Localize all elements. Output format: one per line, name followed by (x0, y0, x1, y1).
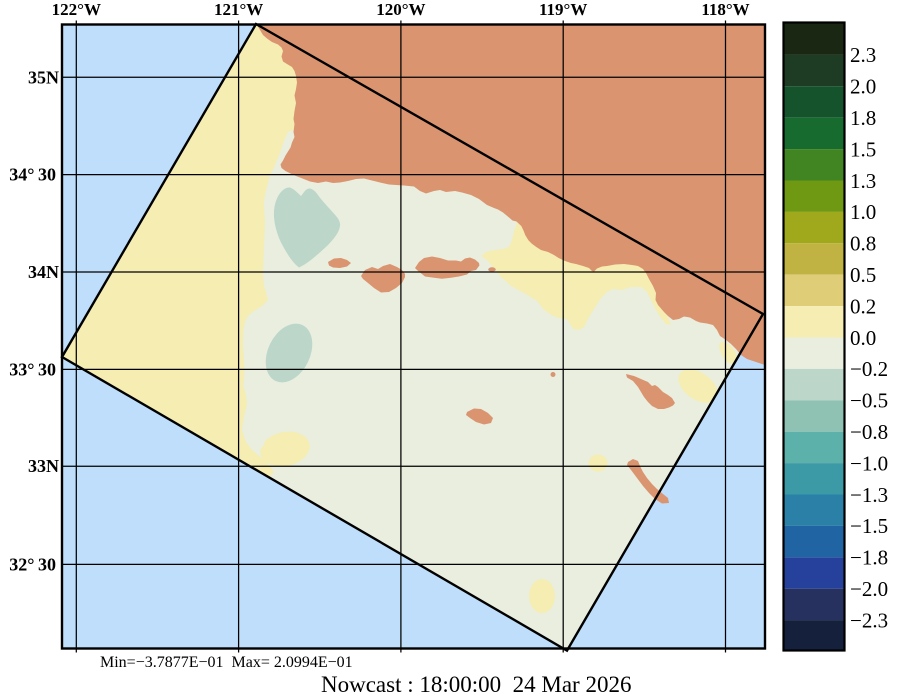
svg-text:−0.5: −0.5 (850, 389, 888, 413)
svg-text:122°W: 122°W (52, 0, 101, 19)
svg-text:120°W: 120°W (376, 0, 425, 19)
svg-text:−1.5: −1.5 (850, 514, 888, 538)
svg-text:0.5: 0.5 (850, 263, 876, 287)
svg-text:−0.8: −0.8 (850, 420, 888, 444)
svg-text:−1.3: −1.3 (850, 483, 888, 507)
svg-text:0.0: 0.0 (850, 326, 876, 350)
svg-text:1.0: 1.0 (850, 200, 876, 224)
svg-text:−2.0: −2.0 (850, 577, 888, 601)
svg-text:0.8: 0.8 (850, 232, 876, 256)
svg-text:118°W: 118°W (701, 0, 749, 19)
svg-text:−0.2: −0.2 (850, 357, 888, 381)
svg-text:−1.8: −1.8 (850, 546, 888, 570)
svg-text:35N: 35N (28, 67, 59, 87)
svg-text:1.8: 1.8 (850, 106, 876, 130)
svg-text:2.3: 2.3 (850, 43, 876, 67)
svg-text:1.5: 1.5 (850, 137, 876, 161)
svg-text:0.2: 0.2 (850, 294, 876, 318)
svg-text:Min=−3.7877E−01 Max= 2.0994E−: Min=−3.7877E−01 Max= 2.0994E−01 (100, 654, 353, 671)
svg-text:121°W: 121°W (214, 0, 263, 19)
svg-text:33° 30: 33° 30 (9, 359, 56, 379)
svg-text:119°W: 119°W (539, 0, 587, 19)
svg-text:34° 30: 34° 30 (9, 165, 56, 185)
svg-text:2.0: 2.0 (850, 75, 876, 99)
svg-text:−1.0: −1.0 (850, 451, 888, 475)
svg-text:34N: 34N (28, 262, 59, 282)
svg-text:1.3: 1.3 (850, 169, 876, 193)
svg-text:32° 30: 32° 30 (9, 554, 56, 574)
svg-text:−2.3: −2.3 (850, 608, 888, 632)
svg-text:33N: 33N (28, 456, 59, 476)
svg-text:Nowcast : 18:00:00 24 Mar 202: Nowcast : 18:00:00 24 Mar 2026 (321, 672, 631, 693)
